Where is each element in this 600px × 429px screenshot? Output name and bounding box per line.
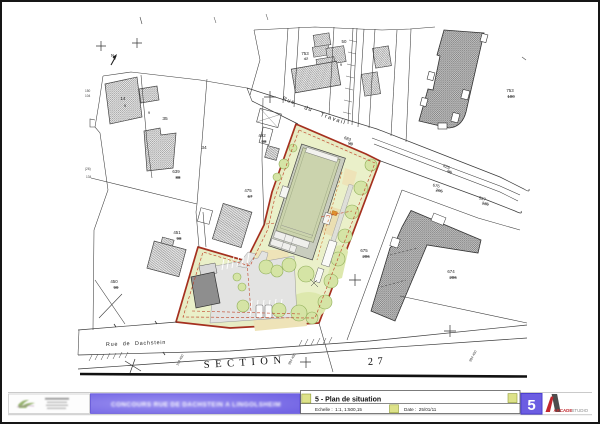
svg-text:N: N [111, 53, 114, 58]
svg-text:639: 639 [172, 169, 180, 174]
svg-text:47: 47 [304, 57, 308, 61]
svg-text:35: 35 [162, 116, 168, 122]
svg-text:475: 475 [244, 188, 252, 193]
svg-text:88: 88 [176, 175, 181, 180]
svg-text:451: 451 [173, 230, 181, 235]
svg-text:STUDIO: STUDIO [572, 408, 589, 413]
svg-text:206: 206 [362, 254, 370, 259]
svg-text:100: 100 [507, 94, 515, 99]
svg-text:753: 753 [301, 51, 309, 56]
svg-text:50: 50 [342, 39, 347, 44]
svg-text:104: 104 [85, 94, 91, 98]
svg-text:27: 27 [368, 356, 388, 368]
svg-text:150: 150 [85, 89, 91, 93]
svg-text:134: 134 [86, 175, 92, 179]
svg-text:(26): (26) [85, 167, 91, 171]
svg-text:98: 98 [262, 139, 267, 144]
svg-text:98: 98 [177, 236, 182, 241]
svg-text:Date : 25/01/11: Date : 25/01/11 [404, 407, 437, 412]
svg-text:14: 14 [121, 96, 126, 101]
svg-text:206: 206 [449, 275, 457, 280]
svg-text:Echelle : 1:1, 1:500,15: Echelle : 1:1, 1:500,15 [315, 407, 362, 412]
svg-text:674: 674 [447, 269, 455, 274]
svg-text:34: 34 [201, 145, 207, 151]
svg-text:99: 99 [114, 285, 119, 290]
svg-text:675: 675 [360, 248, 368, 253]
svg-text:ARCADE: ARCADE [554, 408, 573, 413]
svg-text:492: 492 [258, 133, 266, 138]
svg-text:67: 67 [248, 194, 253, 199]
svg-text:5 - Plan de situation: 5 - Plan de situation [315, 397, 381, 404]
svg-text:9: 9 [124, 104, 126, 108]
svg-text:450: 450 [110, 279, 118, 284]
svg-text:CONCOURS RUE DE DACHSTEIN A LI: CONCOURS RUE DE DACHSTEIN A LINGOLSHEIM [111, 402, 281, 409]
svg-text:753: 753 [506, 88, 514, 93]
svg-text:5: 5 [527, 397, 535, 414]
